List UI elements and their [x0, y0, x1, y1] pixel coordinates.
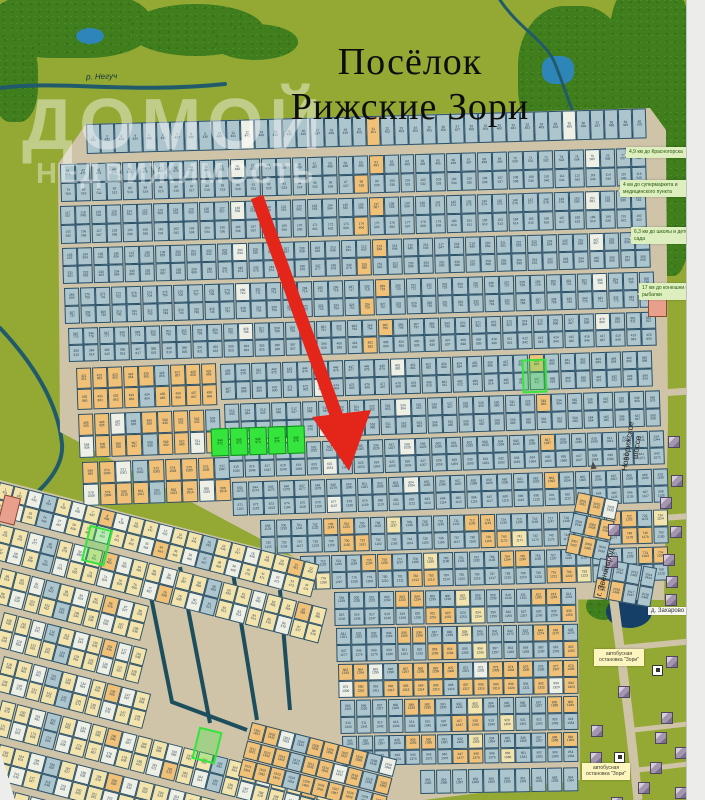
pointer-arrow-shaft	[257, 197, 341, 428]
pointer-arrow-head	[312, 410, 371, 471]
page-edge-right	[686, 0, 705, 800]
pointer-arrow-layer	[0, 0, 705, 800]
map-canvas: 1431243234334434543564367437843894391044…	[0, 0, 705, 800]
